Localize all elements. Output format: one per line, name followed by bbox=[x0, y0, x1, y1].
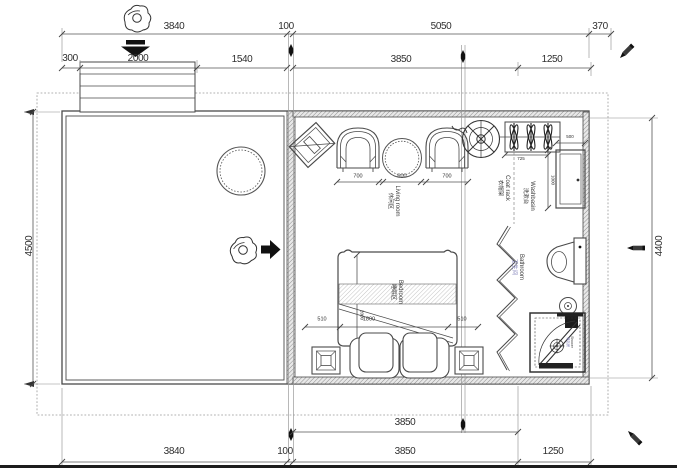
entry-cabinet bbox=[289, 123, 334, 168]
label-bedroom: Bedroom 睡眠区 bbox=[389, 280, 403, 304]
nightstand bbox=[312, 347, 340, 374]
dim-coatrack-725: 725 bbox=[517, 157, 525, 162]
dim-top2-300: 300 bbox=[62, 54, 78, 64]
dim-basin-1000: 1000 bbox=[550, 175, 555, 185]
floor-plan-canvas: 3840 100 5050 370 300 2000 1540 3850 125… bbox=[0, 0, 677, 473]
pencil-icon bbox=[627, 246, 645, 251]
entry-arrow-right-icon bbox=[261, 240, 281, 259]
dim-bottom-inner-3850: 3850 bbox=[395, 418, 416, 428]
round-side-table bbox=[383, 139, 422, 178]
dim-basin-500: 500 bbox=[566, 135, 574, 140]
dim-top2-3850: 3850 bbox=[391, 55, 412, 65]
dim-top2-2000: 2000 bbox=[128, 54, 149, 64]
dim-bed-510-left: 510 bbox=[317, 317, 326, 323]
dim-top-3840: 3840 bbox=[164, 22, 185, 32]
washbasin-fixture bbox=[556, 150, 585, 208]
axis-lines bbox=[289, 34, 466, 462]
dim-chair-700: 700 bbox=[353, 174, 362, 180]
pencil-icon bbox=[618, 44, 634, 60]
person-icon bbox=[228, 235, 259, 267]
label-shower: Shower 淋浴房 bbox=[566, 336, 574, 348]
label-washbasin: Washbasin 洗漱台 bbox=[521, 181, 535, 210]
dim-bottom-3850: 3850 bbox=[395, 447, 416, 457]
axis-marker bbox=[289, 44, 293, 57]
dim-chair-700: 700 bbox=[442, 174, 451, 180]
nightstand bbox=[455, 347, 483, 374]
dim-top2-1250: 1250 bbox=[542, 55, 563, 65]
dim-bottom-3840: 3840 bbox=[164, 447, 185, 457]
dim-bed-2000: 2000 bbox=[359, 310, 364, 320]
top-wall bbox=[293, 111, 589, 117]
dim-top-5050: 5050 bbox=[431, 22, 452, 32]
stairs bbox=[80, 62, 195, 112]
shower-enclosure bbox=[530, 313, 585, 372]
dim-top2-1540: 1540 bbox=[232, 55, 253, 65]
armchair bbox=[337, 128, 379, 172]
dim-bottom-100: 100 bbox=[277, 447, 293, 457]
label-bathroom: Bathroom 卫生间 bbox=[510, 254, 524, 280]
round-table-left-room bbox=[217, 147, 265, 195]
label-coat-rack: Coat rack 衣帽架 bbox=[496, 175, 510, 201]
toilet bbox=[547, 238, 586, 284]
label-living-room: Living room 休闲区 bbox=[386, 185, 400, 216]
person-icon bbox=[124, 5, 151, 32]
pencil-icon bbox=[626, 429, 642, 445]
dim-bed-1800: 1800 bbox=[363, 317, 375, 323]
bottom-border-bar bbox=[0, 465, 677, 468]
dim-top-100: 100 bbox=[278, 22, 294, 32]
bed-pillows bbox=[350, 333, 449, 378]
dim-bed-510-right: 510 bbox=[457, 317, 466, 323]
floor-plan-drawing bbox=[0, 0, 677, 473]
dim-top-370: 370 bbox=[592, 22, 608, 32]
dim-left-4500: 4500 bbox=[25, 236, 35, 257]
dim-bottom-1250: 1250 bbox=[543, 447, 564, 457]
zigzag-partition bbox=[497, 226, 518, 371]
dim-table-600: 600 bbox=[397, 174, 406, 180]
dim-right-4400: 4400 bbox=[655, 236, 665, 257]
